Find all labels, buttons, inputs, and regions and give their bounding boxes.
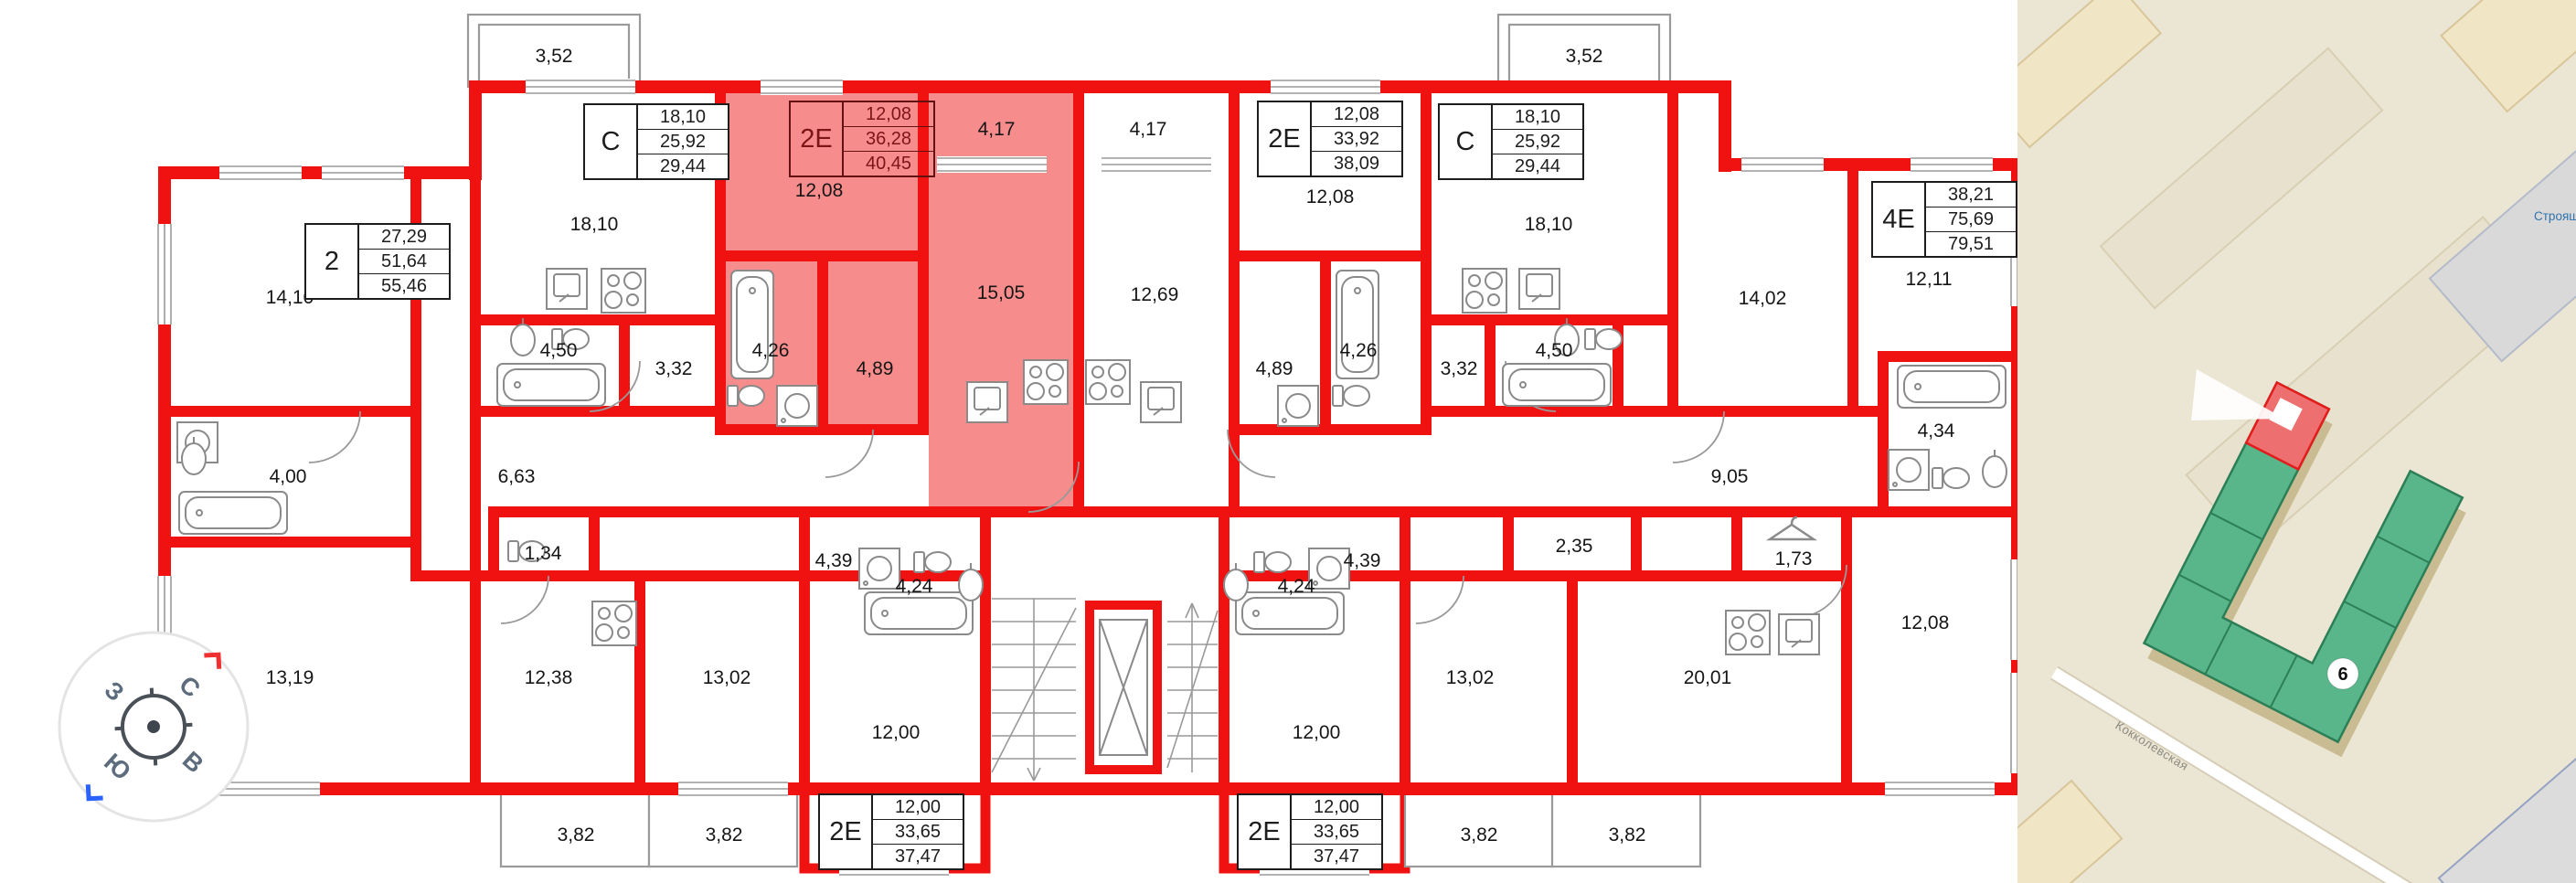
room-area-label: 4,50 — [540, 340, 578, 361]
area-value: 37,47 — [1292, 844, 1381, 868]
bathtub-icon — [1236, 592, 1344, 634]
construction-label: Строящ — [2534, 209, 2576, 223]
location-badge[interactable]: 6 — [2327, 658, 2358, 689]
room-area-label: 15,05 — [977, 282, 1026, 303]
area-value: 12,08 — [1312, 102, 1401, 126]
apartment-card-selected[interactable]: 2Е 12,0836,2840,45 — [789, 101, 935, 177]
stove-icon — [1726, 611, 1770, 654]
washer-icon — [1889, 450, 1929, 490]
washer-icon — [777, 386, 817, 426]
room-area-label: 4,39 — [815, 550, 853, 571]
room-area-label: 12,11 — [1906, 269, 1953, 290]
room-area-label: 1,73 — [1775, 548, 1813, 569]
washer-icon — [859, 548, 899, 589]
room-area-label: 4,26 — [752, 340, 790, 361]
floorplan: 3,52 3,52 18,10 12,08 4,17 4,17 12,08 18… — [0, 0, 2017, 883]
bathtub-icon — [1898, 366, 2006, 408]
toilet-icon — [1932, 468, 1969, 488]
room-area-label: 9,05 — [1711, 466, 1749, 487]
room-area-label: 2,35 — [1556, 536, 1593, 557]
area-value: 25,92 — [1493, 129, 1582, 154]
toilet-icon — [1585, 329, 1622, 349]
stove-icon — [601, 269, 645, 313]
room-area-label: 12,69 — [1131, 284, 1179, 305]
room-area-label: 18,10 — [570, 214, 619, 235]
apartment-type-label: С — [1440, 105, 1493, 178]
area-value: 37,47 — [873, 844, 963, 868]
room-area-label: 4,17 — [1130, 119, 1167, 140]
toilet-icon — [914, 552, 951, 572]
room-area-label: 12,08 — [1901, 612, 1950, 633]
kitchen-sink-icon — [1519, 269, 1559, 309]
room-area-label: 4,17 — [978, 119, 1016, 140]
bathtub-icon — [1336, 271, 1378, 378]
stove-icon — [1024, 360, 1068, 404]
floor-plan-page: 3,52 3,52 18,10 12,08 4,17 4,17 12,08 18… — [0, 0, 2576, 883]
apartment-type-label: С — [585, 105, 638, 178]
room-area-label: 3,32 — [1441, 358, 1478, 379]
area-value: 12,08 — [844, 102, 933, 126]
room-area-label: 3,52 — [536, 46, 573, 67]
apartment-card-2e-bottom-right[interactable]: 2Е 12,0033,6537,47 — [1237, 793, 1383, 870]
room-area-label: 3,52 — [1566, 46, 1603, 67]
room-area-label: 1,34 — [525, 543, 562, 564]
toilet-icon — [728, 386, 764, 406]
washer-icon — [1278, 386, 1318, 426]
room-area-label: 4,24 — [1278, 576, 1315, 597]
badge-number: 6 — [2337, 665, 2347, 685]
apartment-type-label: 2 — [306, 225, 359, 298]
area-value: 33,65 — [873, 819, 963, 844]
area-value: 55,46 — [359, 273, 449, 298]
area-value: 27,29 — [359, 225, 449, 249]
room-area-label: 13,02 — [703, 667, 751, 688]
room-area-label: 4,89 — [1256, 358, 1293, 379]
area-value: 36,28 — [844, 126, 933, 151]
room-area-label: 3,82 — [1609, 824, 1646, 846]
room-area-label: 18,10 — [1525, 214, 1573, 235]
apartment-type-label: 2Е — [1239, 795, 1292, 868]
area-value: 38,21 — [1926, 183, 2016, 207]
apartment-card-4e[interactable]: 4Е 38,2175,6979,51 — [1871, 181, 2017, 258]
room-area-label: 4,24 — [896, 576, 933, 597]
apartment-card-2e-bottom-left[interactable]: 2Е 12,0033,6537,47 — [818, 793, 964, 870]
area-value: 29,44 — [638, 154, 728, 178]
kitchen-sink-icon — [967, 382, 1007, 422]
bathtub-icon — [497, 364, 605, 406]
stove-icon — [592, 601, 636, 645]
room-area-label: 13,19 — [266, 667, 314, 688]
room-area-label: 3,82 — [706, 824, 743, 846]
apartment-card-studio-left[interactable]: С 18,1025,9229,44 — [583, 103, 729, 180]
room-area-label: 4,26 — [1340, 340, 1378, 361]
apartment-type-label: 2Е — [1259, 102, 1312, 176]
room-area-label: 12,08 — [1306, 186, 1355, 207]
room-area-label: 4,34 — [1918, 420, 1955, 441]
area-value: 29,44 — [1493, 154, 1582, 178]
apartment-type-label: 4Е — [1873, 183, 1926, 256]
kitchen-sink-icon — [1141, 382, 1181, 422]
bathtub-icon — [179, 492, 287, 534]
apartment-type-label: 2Е — [820, 795, 873, 868]
room-area-label: 14,02 — [1739, 288, 1787, 309]
room-area-label: 20,01 — [1684, 667, 1732, 688]
area-value: 25,92 — [638, 129, 728, 154]
apartment-card-2e-right[interactable]: 2Е 12,0833,9238,09 — [1257, 101, 1403, 177]
apartment-card-studio-right[interactable]: С 18,1025,9229,44 — [1438, 103, 1584, 180]
room-area-label: 3,82 — [558, 824, 595, 846]
apartment-type-label: 2Е — [791, 102, 844, 176]
stove-icon — [1086, 360, 1130, 404]
room-area-label: 4,50 — [1536, 340, 1573, 361]
bathtub-icon — [865, 592, 973, 634]
room-area-label: 12,08 — [795, 180, 844, 201]
toilet-icon — [1254, 552, 1291, 572]
area-value: 38,09 — [1312, 151, 1401, 176]
stove-icon — [1463, 269, 1506, 313]
area-value: 12,00 — [873, 795, 963, 819]
area-value: 33,92 — [1312, 126, 1401, 151]
kitchen-sink-icon — [1779, 614, 1819, 654]
area-value: 12,00 — [1292, 795, 1381, 819]
room-area-label: 3,82 — [1461, 824, 1498, 846]
room-area-label: 4,89 — [857, 358, 894, 379]
room-area-label: 12,38 — [525, 667, 573, 688]
area-value: 18,10 — [638, 105, 728, 129]
area-value: 79,51 — [1926, 231, 2016, 256]
room-area-label: 13,02 — [1446, 667, 1495, 688]
kitchen-sink-icon — [547, 269, 587, 309]
room-area-label: 12,00 — [872, 722, 921, 743]
apartment-card-2room[interactable]: 2 27,2951,6455,46 — [304, 223, 451, 300]
room-area-label: 4,39 — [1344, 550, 1381, 571]
room-area-label: 12,00 — [1293, 722, 1341, 743]
area-value: 40,45 — [844, 151, 933, 176]
bathtub-icon — [731, 271, 773, 378]
area-value: 33,65 — [1292, 819, 1381, 844]
room-area-label: 6,63 — [498, 466, 536, 487]
bathtub-icon — [1503, 364, 1611, 406]
area-value: 75,69 — [1926, 207, 2016, 231]
toilet-icon — [1333, 386, 1369, 406]
area-value: 51,64 — [359, 249, 449, 273]
map-panel[interactable]: Строящ Кокколевская 6 — [2017, 0, 2576, 883]
area-value: 18,10 — [1493, 105, 1582, 129]
room-area-label: 3,32 — [655, 358, 693, 379]
room-area-label: 4,00 — [270, 466, 307, 487]
